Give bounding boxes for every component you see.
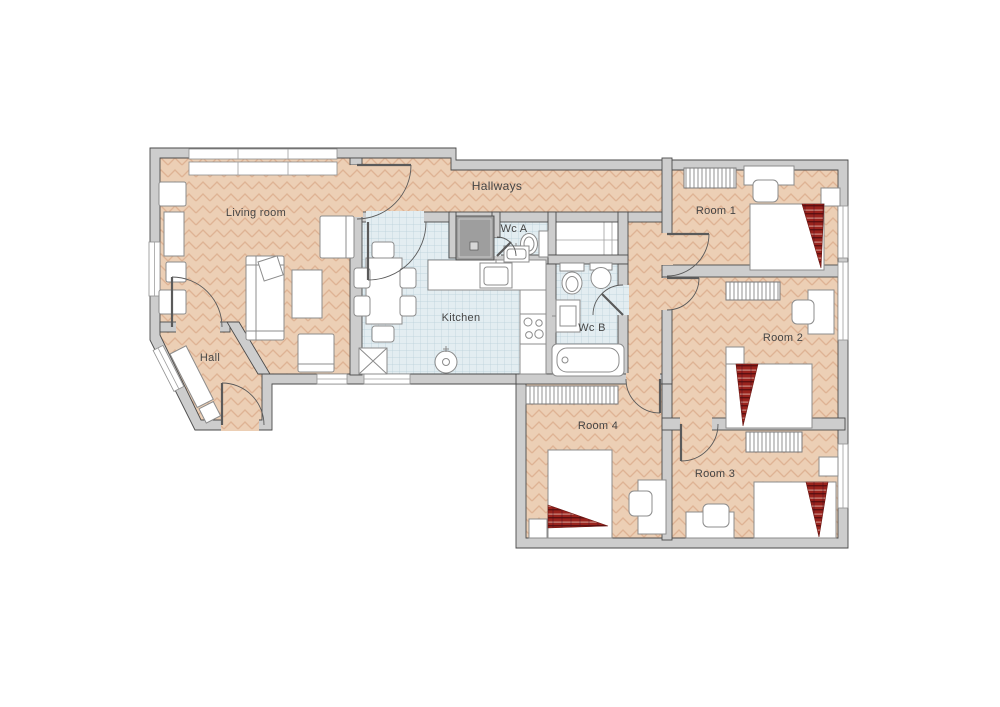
- window-livingroom-bottom: [317, 374, 347, 384]
- window-livingroom-left: [149, 242, 160, 296]
- stove: [520, 314, 546, 344]
- radiator: [526, 386, 618, 404]
- livingroom-hallway-opening: [349, 165, 363, 217]
- radiator: [726, 282, 780, 300]
- desk-chair: [753, 180, 778, 202]
- side-table: [164, 212, 184, 256]
- window-livingroom-top: [189, 149, 337, 175]
- wc-a-label: Wc A: [501, 223, 528, 235]
- floor-hatch: [359, 348, 387, 374]
- bathtub: [552, 344, 624, 376]
- armchair: [298, 334, 334, 372]
- sofa: [246, 256, 284, 340]
- bed: [750, 204, 824, 270]
- kitchen-door-opening: [366, 211, 424, 223]
- window-room2-right: [838, 262, 848, 340]
- bed: [754, 482, 836, 538]
- room1-door-opening: [661, 233, 673, 265]
- chair: [372, 242, 394, 258]
- hallways-label: Hallways: [472, 179, 522, 193]
- bed: [726, 364, 812, 428]
- chair: [372, 326, 394, 342]
- kitchen-sink: [480, 259, 512, 288]
- desk-chair: [703, 504, 729, 527]
- coffee-table: [292, 270, 322, 318]
- bed: [548, 450, 612, 538]
- room4-door-opening: [626, 373, 660, 385]
- nightstand: [529, 519, 547, 538]
- living-room-label: Living room: [226, 207, 286, 219]
- nightstand: [821, 188, 840, 206]
- room-4-label: Room 4: [578, 420, 618, 432]
- radiator: [684, 168, 736, 188]
- nightstand: [819, 457, 838, 476]
- desk-chair: [792, 300, 814, 324]
- radiator: [746, 432, 802, 452]
- window-kitchen-bottom: [364, 374, 410, 384]
- armchair: [320, 216, 354, 258]
- armchair: [159, 182, 186, 206]
- shower: [456, 216, 494, 260]
- chair: [354, 296, 370, 316]
- hall-livingroom-opening: [176, 321, 220, 333]
- toilet: [560, 263, 584, 294]
- room-2-label: Room 2: [763, 332, 803, 344]
- nightstand: [726, 347, 744, 364]
- chair: [166, 262, 186, 282]
- room2-door-opening: [661, 278, 673, 310]
- closet: [554, 220, 618, 258]
- chair: [400, 296, 416, 316]
- wall-closet-right: [618, 212, 628, 258]
- front-door-opening: [221, 419, 259, 431]
- desk-chair: [629, 491, 652, 516]
- floor-plan-page: Living room Hallways Hall Kitchen Wc A W…: [0, 0, 1000, 707]
- wc-b-label: Wc B: [578, 322, 605, 334]
- wall-wca-closet: [548, 212, 556, 255]
- hall-label: Hall: [200, 352, 220, 364]
- room-3-label: Room 3: [695, 468, 735, 480]
- dining-table: [366, 258, 402, 324]
- kitchen-label: Kitchen: [442, 312, 481, 324]
- floor-plan-image: Living room Hallways Hall Kitchen Wc A W…: [0, 0, 1000, 707]
- wall-shower-left: [449, 212, 456, 258]
- window-room3-right: [838, 444, 848, 508]
- washbasin: [552, 300, 580, 332]
- window-room1-right: [838, 206, 848, 258]
- sink: [590, 263, 612, 289]
- room3-door-opening: [680, 417, 712, 431]
- room-1-label: Room 1: [696, 205, 736, 217]
- chair: [400, 268, 416, 288]
